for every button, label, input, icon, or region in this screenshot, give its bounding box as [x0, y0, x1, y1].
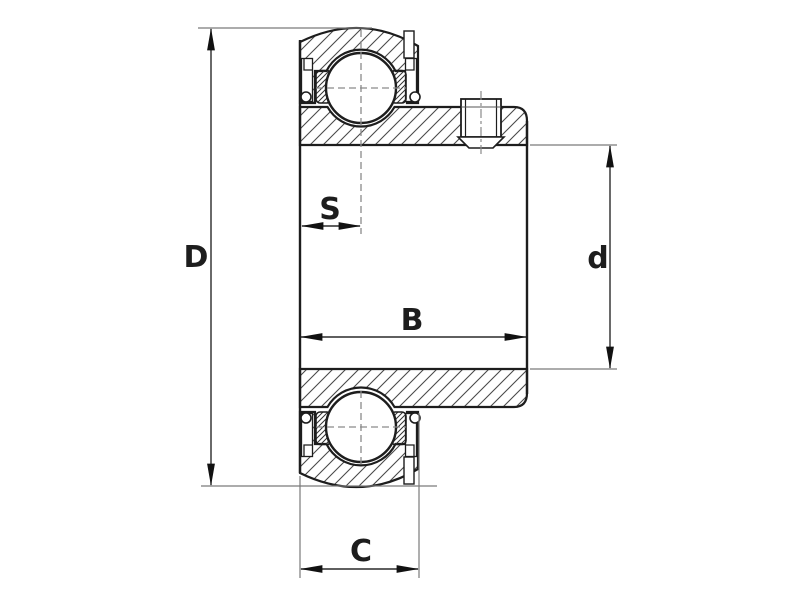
dimension-S: S [302, 192, 360, 227]
outer-ring-top-slot [404, 31, 414, 58]
outer-ring-bottom-slot [404, 457, 414, 484]
seal-anchor-top-left [301, 92, 311, 102]
dimension-label-S: S [319, 192, 341, 227]
dimension-label-C: C [350, 534, 372, 569]
dimension-label-D: D [184, 240, 209, 275]
seal-anchor-bottom-left [301, 413, 311, 423]
bearing-cross-section [300, 28, 527, 487]
dimension-label-d: d [587, 241, 608, 276]
inner-ring-bottom-band [300, 369, 527, 407]
drawing-canvas: D S B d C [0, 0, 800, 600]
dimension-label-B: B [401, 303, 424, 338]
dimension-B: B [301, 303, 526, 338]
dimension-d: d [530, 145, 617, 369]
seal-anchor-top-right [410, 92, 420, 102]
bearing-technical-diagram: D S B d C [0, 0, 800, 600]
